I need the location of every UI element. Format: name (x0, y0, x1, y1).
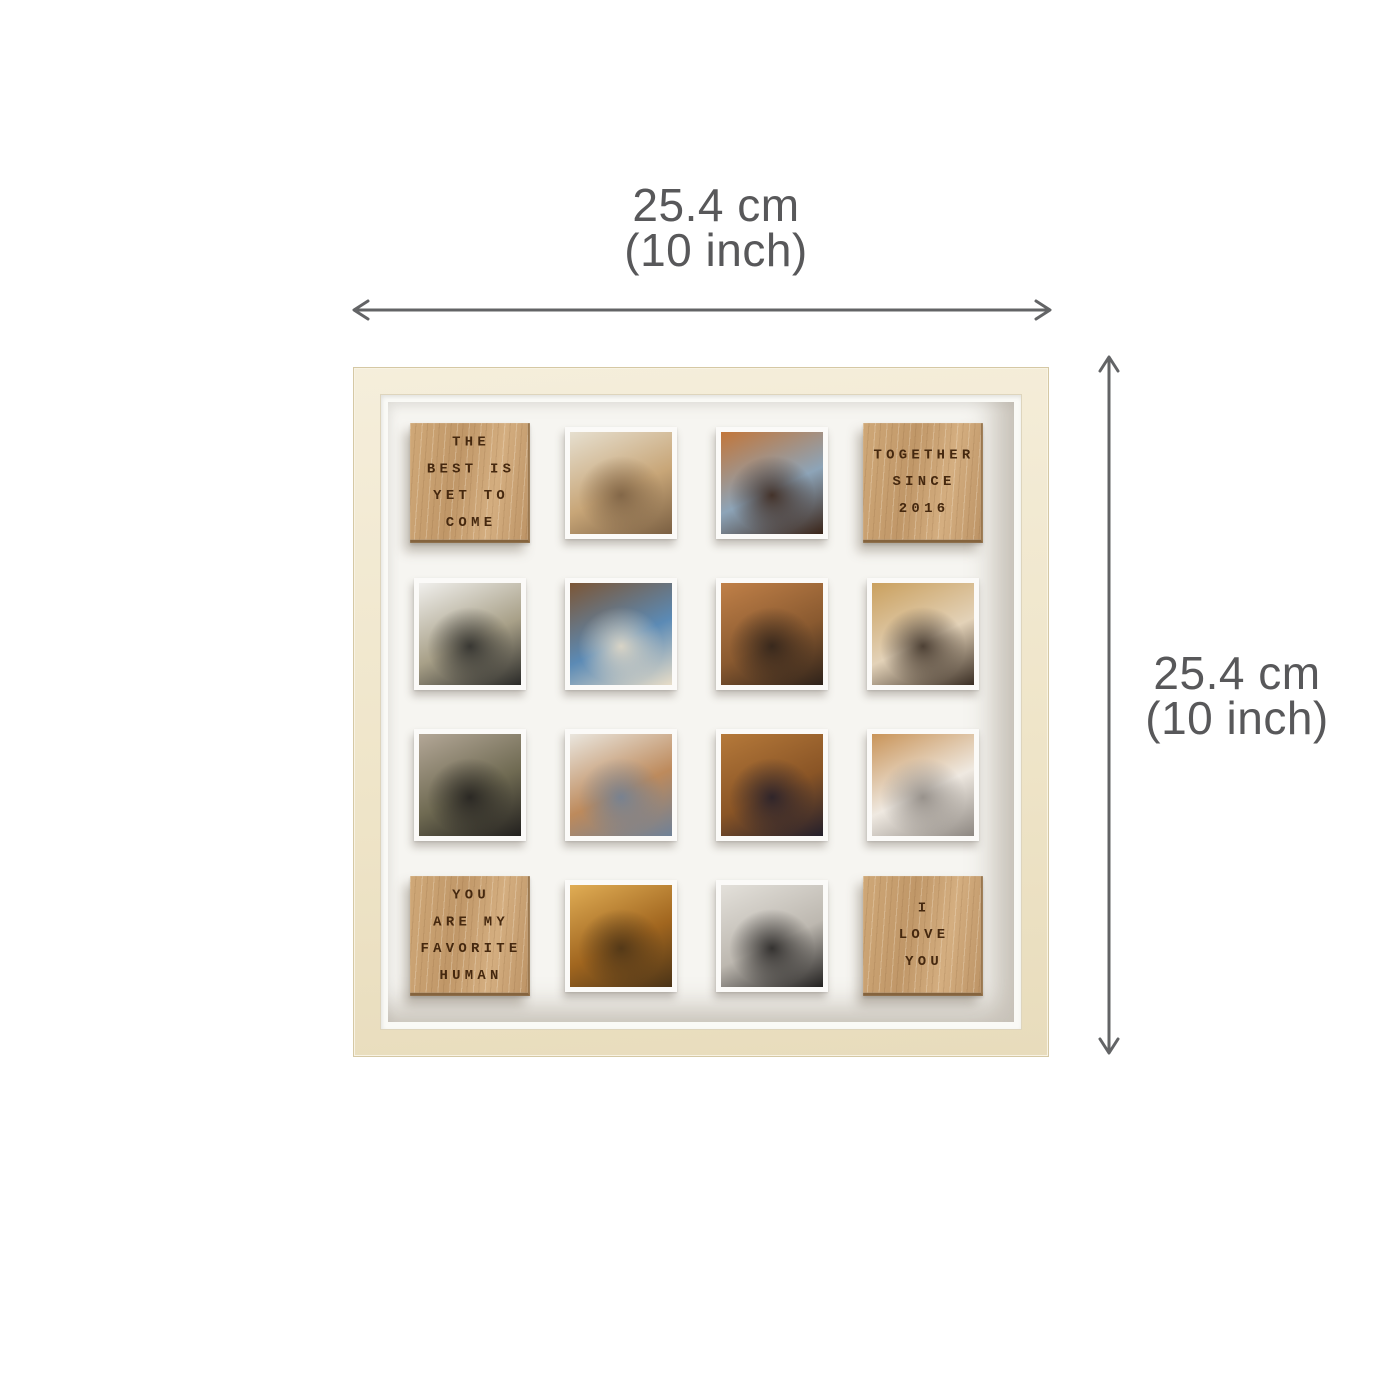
photo-couple-winter-hug-image (721, 885, 823, 987)
engraved-text-line: 2016 (895, 495, 950, 522)
engraved-text-line: I (913, 894, 930, 921)
engraved-text-line: ARE MY (429, 908, 509, 935)
frame-white-mat: THEBEST ISYET TOCOMETOGETHERSINCE2016YOU… (388, 402, 1014, 1022)
photo-kiss-cheek-autumn (716, 578, 828, 690)
photo-forehead-kiss-beanie-image (419, 734, 521, 836)
photo-couple-evening-lights (716, 427, 828, 539)
tile-grid: THEBEST ISYET TOCOMETOGETHERSINCE2016YOU… (388, 402, 1014, 1022)
photo-piggyback-snow (414, 578, 526, 690)
height-label-inch: (10 inch) (1145, 696, 1328, 741)
photo-couple-dancing-street (867, 729, 979, 841)
engraved-text-line: BEST IS (423, 455, 516, 482)
photo-couple-golden-forest (565, 880, 677, 992)
width-label-inch: (10 inch) (624, 228, 807, 273)
wooden-frame: THEBEST ISYET TOCOMETOGETHERSINCE2016YOU… (353, 367, 1049, 1057)
photo-couple-golden-forest-image (570, 885, 672, 987)
photo-couple-denim-smiling-image (570, 583, 672, 685)
photo-couple-evening-lights-image (721, 432, 823, 534)
photo-couple-winter-hug (716, 880, 828, 992)
wood-i-love-you: ILOVEYOU (863, 876, 983, 996)
photo-piggyback-snow-image (419, 583, 521, 685)
width-dimension-label: 25.4 cm (10 inch) (624, 183, 807, 273)
product-dimension-image: 25.4 cm (10 inch) 25.4 cm (10 inch) THEB… (0, 0, 1400, 1400)
photo-couple-autumn-path-image (872, 583, 974, 685)
photo-piggyback-autumn-forest (716, 729, 828, 841)
photo-couple-autumn-path (867, 578, 979, 690)
engraved-text-line: SINCE (888, 468, 955, 495)
engraved-text-line: LOVE (895, 921, 950, 948)
photo-couple-denim-smiling (565, 578, 677, 690)
wood-you-are-my-favorite-human: YOUARE MYFAVORITEHUMAN (410, 876, 530, 996)
engraved-text-line: HUMAN (435, 961, 502, 988)
photo-kiss-cheek-autumn-image (721, 583, 823, 685)
photo-forehead-kiss-beanie (414, 729, 526, 841)
photo-piggyback-autumn-forest-image (721, 734, 823, 836)
height-dimension-arrow (1095, 350, 1123, 1060)
width-dimension-arrow (346, 296, 1058, 324)
photo-couple-lifting-indoors-image (570, 734, 672, 836)
engraved-text-line: FAVORITE (416, 934, 521, 961)
engraved-text-line: YET TO (429, 481, 509, 508)
photo-couple-dancing-street-image (872, 734, 974, 836)
height-label-cm: 25.4 cm (1145, 651, 1328, 696)
engraved-text-line: YOU (448, 881, 490, 908)
engraved-text-line: THE (448, 428, 490, 455)
photo-couple-walking-desert (565, 427, 677, 539)
photo-couple-lifting-indoors (565, 729, 677, 841)
engraved-text-line: COME (442, 508, 497, 535)
wood-together-since-2016: TOGETHERSINCE2016 (863, 423, 983, 543)
photo-couple-walking-desert-image (570, 432, 672, 534)
width-label-cm: 25.4 cm (624, 183, 807, 228)
engraved-text-line: TOGETHER (869, 441, 974, 468)
wood-quote-best-yet-to-come: THEBEST ISYET TOCOME (410, 423, 530, 543)
height-dimension-label: 25.4 cm (10 inch) (1145, 651, 1328, 741)
engraved-text-line: YOU (901, 948, 943, 975)
